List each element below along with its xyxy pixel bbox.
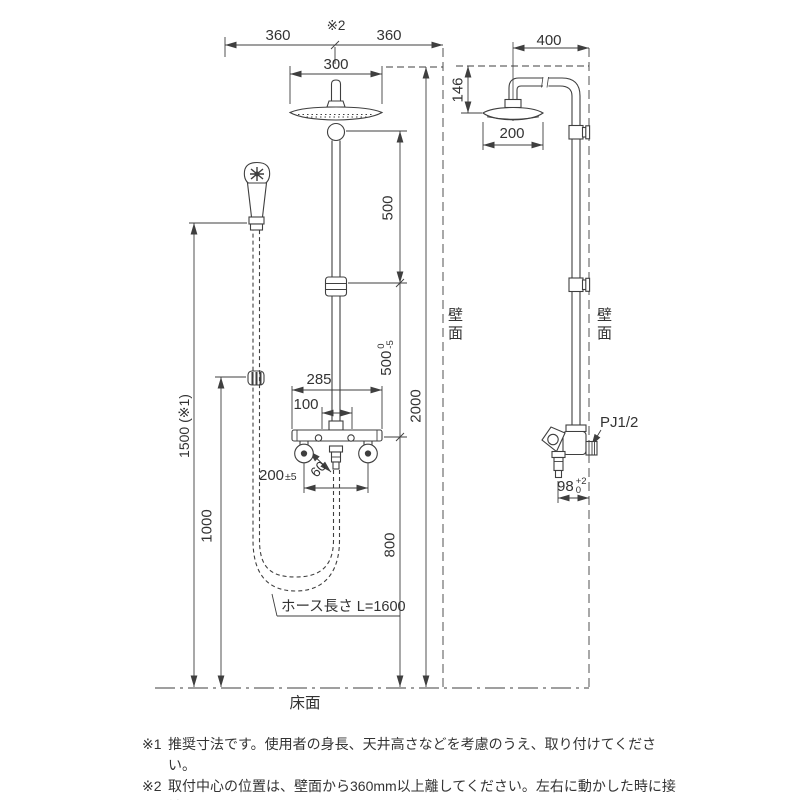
- wall-bracket-upper: [569, 126, 590, 140]
- dim-98-value: 98: [557, 479, 574, 494]
- dim-200-value: 200: [259, 468, 284, 483]
- dim-1500: 1500 (※1): [177, 394, 191, 458]
- note-2-text: 取付中心の位置は、壁面から360mm以上離してください。左右に動かした時に接触: [168, 776, 682, 800]
- dim-360-right: 360: [376, 28, 401, 43]
- dim-200-front: 200 ±5: [259, 468, 297, 483]
- dim-500-lower-value: 500: [379, 351, 394, 376]
- faucet-body-front: [292, 421, 382, 469]
- thread-label-pj: PJ1/2: [600, 415, 638, 430]
- side-view: [456, 42, 601, 688]
- dim-200-side: 200: [499, 126, 524, 141]
- dim-285: 285: [306, 372, 331, 387]
- front-fixture: [244, 80, 382, 591]
- front-dimension-lines: [189, 37, 443, 687]
- dim-400: 400: [536, 33, 561, 48]
- dim-500-lower: 500 0 -5: [377, 340, 395, 375]
- overhead-shower-side: [483, 100, 543, 120]
- front-view: [189, 37, 443, 688]
- center-mark-ref2: ※2: [327, 19, 346, 33]
- side-wall-line: [456, 48, 589, 688]
- installation-notes: ※1 推奨寸法です。使用者の身長、天井高さなどを考慮のうえ、取り付けてください。…: [142, 734, 682, 800]
- note-1-text: 推奨寸法です。使用者の身長、天井高さなどを考慮のうえ、取り付けてください。: [168, 734, 682, 776]
- dim-500-upper: 500: [381, 195, 396, 220]
- wall-bracket-lower: [569, 278, 590, 292]
- hose-length-label: ホース長さ L=1600: [281, 600, 406, 615]
- wall-label-front: 壁面: [447, 307, 462, 343]
- tol-lower: -5: [386, 340, 395, 348]
- dim-146: 146: [451, 77, 466, 102]
- dim-200-tolerance: ±5: [285, 472, 297, 483]
- note-1: ※1 推奨寸法です。使用者の身長、天井高さなどを考慮のうえ、取り付けてください。: [142, 734, 682, 776]
- floor-label: 床面: [289, 696, 320, 712]
- dim-1000: 1000: [200, 509, 215, 542]
- wall-label-side: 壁面: [596, 307, 611, 343]
- dim-800: 800: [383, 532, 398, 557]
- hand-shower: [244, 163, 269, 231]
- note-2: ※2 取付中心の位置は、壁面から360mm以上離してください。左右に動かした時に…: [142, 776, 682, 800]
- dim-500-lower-tolerance: 0 -5: [377, 340, 395, 348]
- note-2-marker: ※2: [142, 776, 168, 800]
- note-1-marker: ※1: [142, 734, 168, 776]
- dim-300: 300: [323, 57, 348, 72]
- hose-hook: [248, 371, 264, 385]
- drawing-canvas: [0, 0, 800, 800]
- dim-98-tolerance: +2 0: [576, 477, 587, 495]
- dim-100: 100: [293, 397, 318, 412]
- dim-98: 98 +2 0: [557, 477, 587, 495]
- dim-360-left: 360: [265, 28, 290, 43]
- dim-98-tol-lower: 0: [576, 486, 587, 495]
- dim-2000: 2000: [409, 389, 424, 422]
- shower-installation-drawing: 360 ※2 360 300 500 500 0 -5 2000 800 150…: [0, 0, 800, 800]
